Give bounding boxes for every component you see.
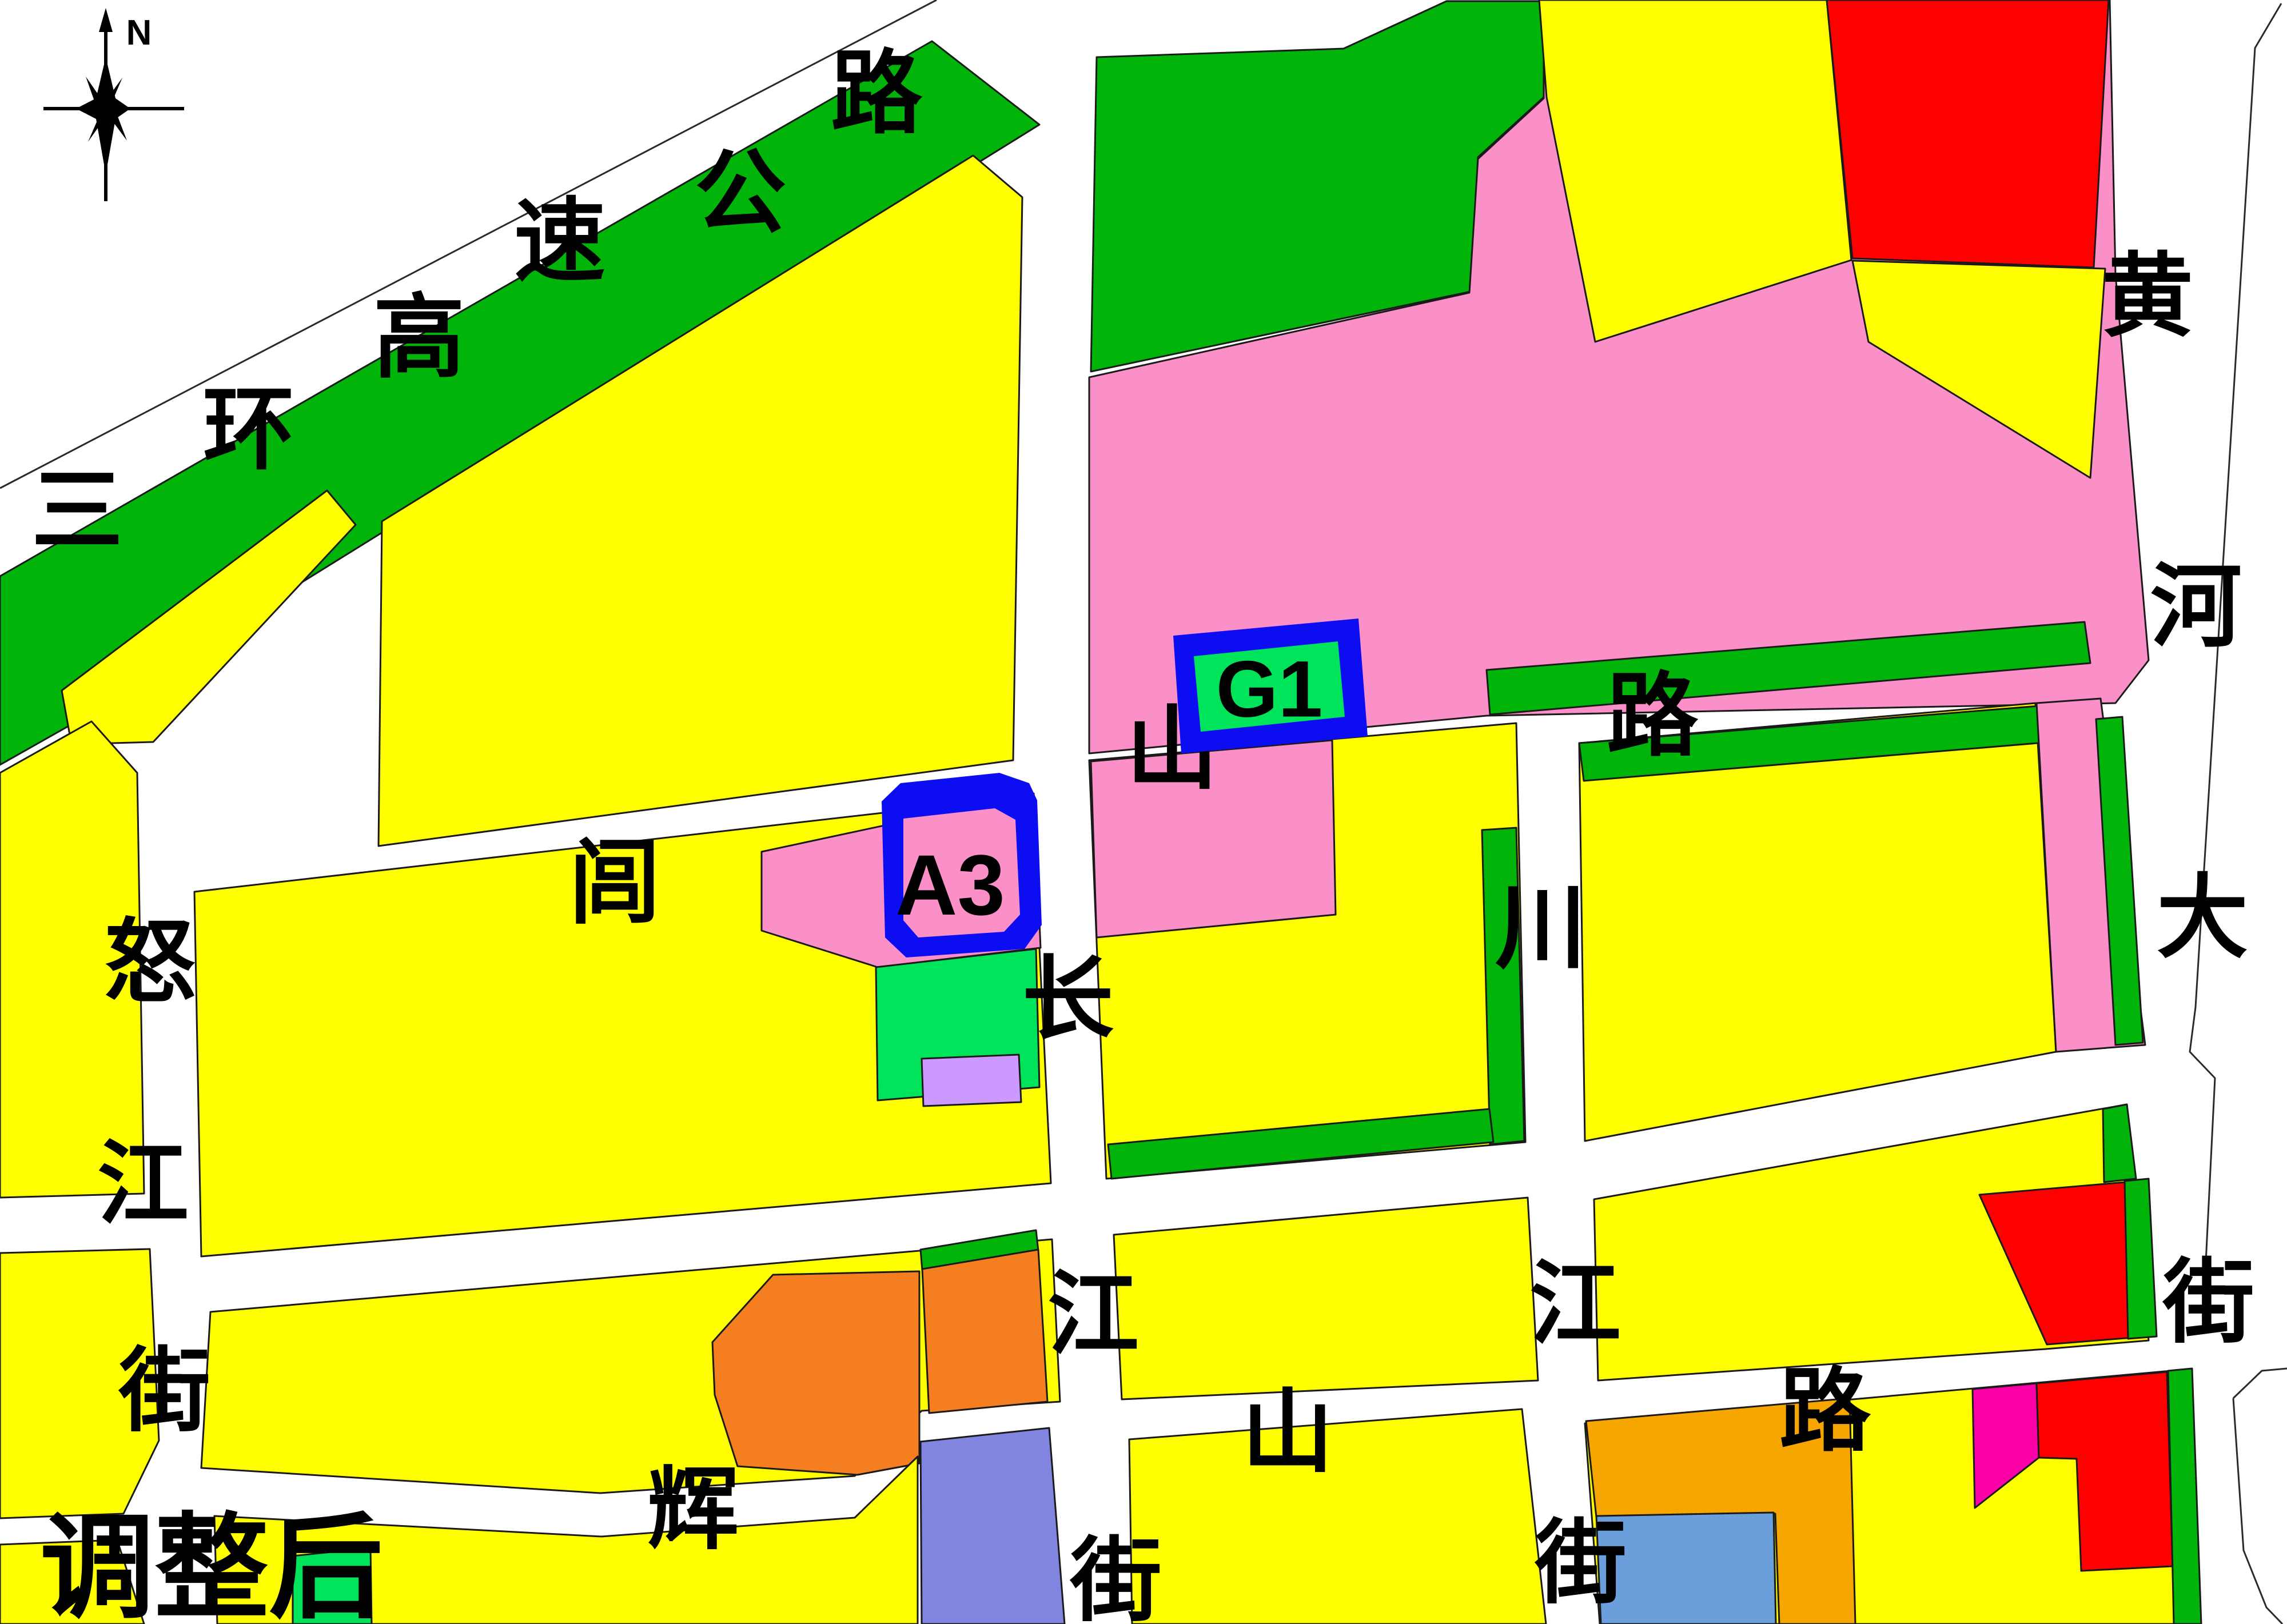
parcel-periwinkle-parcel-bottom bbox=[921, 1428, 1065, 1624]
map-caption: 调整后 bbox=[40, 1505, 383, 1624]
road-label-char-怒江街: 江 bbox=[97, 1133, 189, 1235]
zoning-map-page: 三环高速公路闾山路怒江街长江街川江街黄河大街辉山路 G1A3 N 调整后 bbox=[0, 0, 2287, 1624]
parcel-yellow-block-south-mid bbox=[1114, 1198, 1538, 1399]
compass-north-label: N bbox=[126, 13, 152, 53]
road-label-char-三环高速公路: 环 bbox=[203, 378, 294, 481]
parcel-red-top-right bbox=[1827, 0, 2109, 268]
road-label-char-闾山路: 闾 bbox=[569, 832, 660, 935]
parcel-green-strip-red-east bbox=[2125, 1179, 2157, 1339]
road-label-char-川江街: 川 bbox=[1495, 877, 1587, 979]
zoning-map-canvas[interactable]: 三环高速公路闾山路怒江街长江街川江街黄河大街辉山路 G1A3 N 调整后 bbox=[0, 0, 2287, 1624]
compass-arrow-head bbox=[99, 8, 113, 32]
parcel-green-strip-huanghe-mid bbox=[2103, 1104, 2136, 1182]
road-label-char-川江街: 江 bbox=[1529, 1253, 1621, 1355]
parcel-orange-parcel-east bbox=[922, 1250, 1047, 1413]
compass-rose-icon: N bbox=[43, 8, 184, 201]
road-label-char-长江街: 街 bbox=[1069, 1530, 1162, 1624]
parcel-green-strip-bottom-right bbox=[2168, 1368, 2201, 1624]
road-label-char-长江街: 长 bbox=[1022, 948, 1114, 1051]
road-label-char-三环高速公路: 公 bbox=[695, 142, 786, 244]
road-label-char-三环高速公路: 三 bbox=[31, 460, 123, 562]
road-label-char-辉山路: 山 bbox=[1242, 1381, 1333, 1483]
road-label-char-黄河大街: 大 bbox=[2157, 867, 2248, 969]
road-label-char-辉山路: 辉 bbox=[647, 1458, 739, 1561]
road-label-char-怒江街: 街 bbox=[118, 1340, 210, 1442]
parcel-purple-below-a3 bbox=[922, 1055, 1021, 1106]
landuse-parcels bbox=[0, 0, 2201, 1624]
road-label-char-黄河大街: 街 bbox=[2162, 1251, 2254, 1354]
road-label-char-闾山路: 路 bbox=[1607, 665, 1699, 767]
outline-white-parcel-corner-east bbox=[2233, 1368, 2287, 1624]
road-label-char-三环高速公路: 路 bbox=[831, 42, 923, 145]
road-label-char-辉山路: 路 bbox=[1779, 1360, 1871, 1462]
road-label-char-长江街: 江 bbox=[1047, 1263, 1139, 1366]
road-label-char-三环高速公路: 速 bbox=[514, 190, 605, 293]
road-label-char-黄河大街: 黄 bbox=[2102, 245, 2193, 348]
highlight-box-label-A3: A3 bbox=[895, 837, 1005, 933]
parcel-green-strip-chuanjiang-west bbox=[1482, 828, 1524, 1144]
road-label-char-川江街: 街 bbox=[1534, 1512, 1627, 1614]
road-label-char-三环高速公路: 高 bbox=[373, 286, 465, 389]
highlight-box-label-G1: G1 bbox=[1216, 644, 1323, 734]
road-label-char-怒江街: 怒 bbox=[104, 911, 196, 1013]
parcel-yellow-bottom-south-mid bbox=[1129, 1409, 1546, 1624]
road-label-char-黄河大街: 河 bbox=[2150, 556, 2242, 658]
